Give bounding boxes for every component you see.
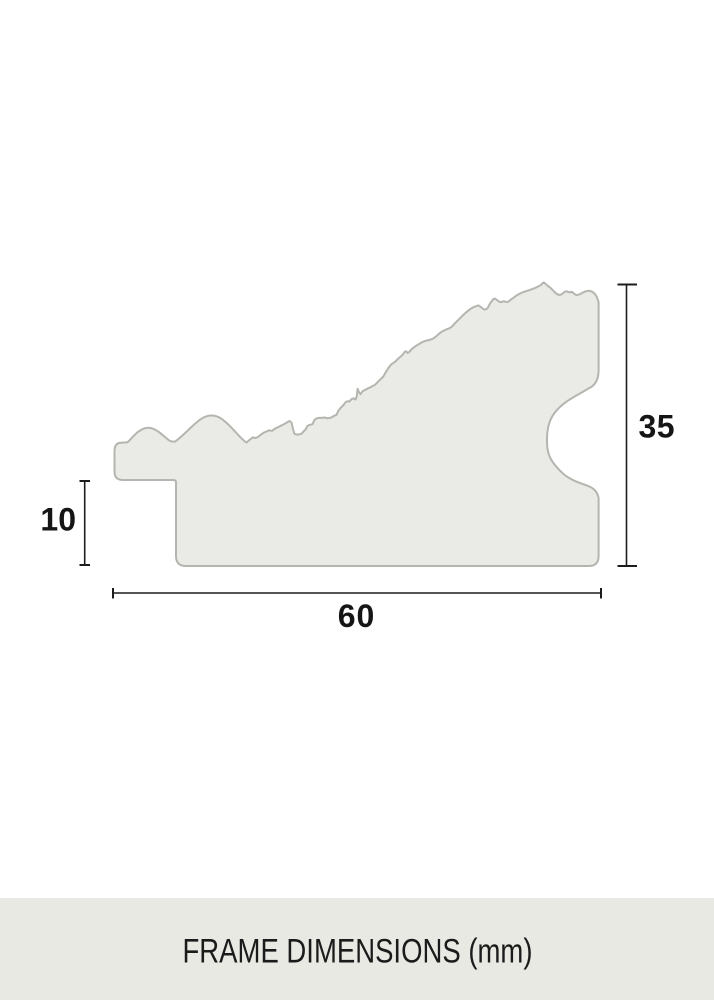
- svg-text:FRAME DIMENSIONS (mm): FRAME DIMENSIONS (mm): [183, 933, 533, 971]
- svg-text:60: 60: [338, 598, 376, 634]
- svg-text:10: 10: [40, 502, 76, 538]
- svg-text:35: 35: [639, 409, 676, 445]
